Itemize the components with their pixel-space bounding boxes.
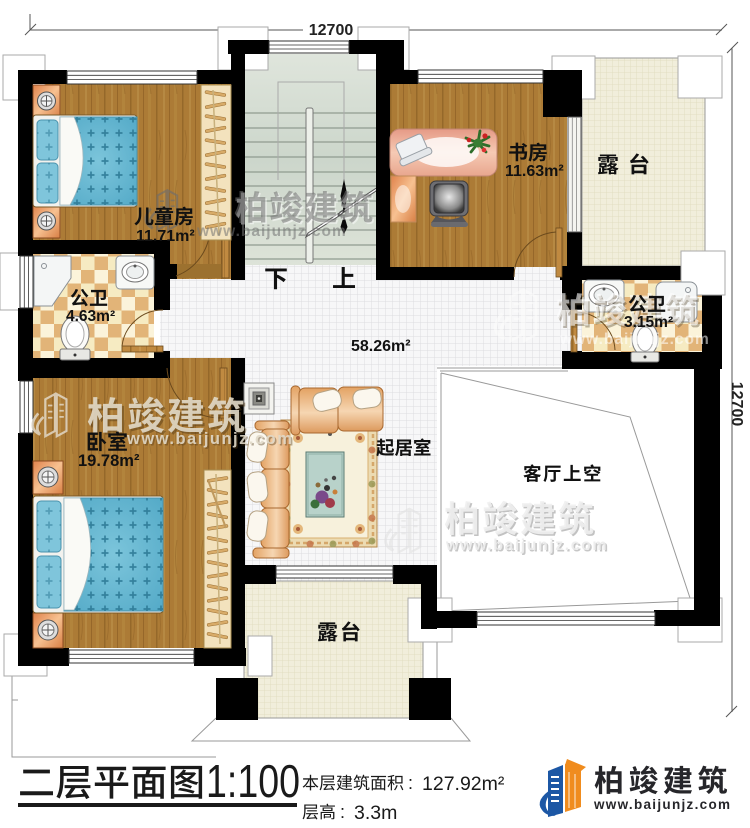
svg-text:www.baijunjz.com: www.baijunjz.com [593,797,731,812]
svg-text:www.baijunjz.com: www.baijunjz.com [126,430,293,448]
svg-text:11.63m²: 11.63m² [505,163,564,180]
svg-text:1:100: 1:100 [206,755,300,807]
svg-text:www.baijunjz.com: www.baijunjz.com [559,331,710,348]
svg-text:11.71m²: 11.71m² [136,228,195,245]
svg-text:58.26m²: 58.26m² [351,338,411,355]
svg-text:19.78m²: 19.78m² [78,452,140,470]
svg-text:www.baijunjz.com: www.baijunjz.com [196,223,347,240]
svg-text:3.3m: 3.3m [354,802,397,824]
svg-text:127.92m²: 127.92m² [422,773,505,795]
svg-text:3.15m²: 3.15m² [624,314,673,331]
svg-text:12700: 12700 [309,22,354,39]
svg-text:12700: 12700 [728,382,745,427]
svg-text::: : [340,802,345,822]
svg-text:4.63m²: 4.63m² [66,308,115,325]
svg-text:www.baijunjz.com: www.baijunjz.com [445,537,608,554]
svg-text::: : [408,773,413,793]
